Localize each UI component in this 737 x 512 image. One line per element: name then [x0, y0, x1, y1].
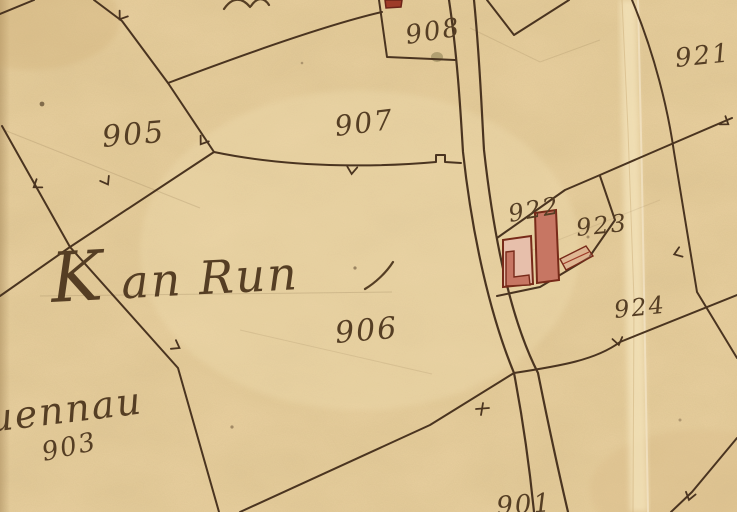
cadastral-map-scan: K an Runuennau 9059079089219229239249069…: [0, 0, 737, 512]
parcel-label-921: 921: [674, 38, 732, 74]
parcel-label-905: 905: [101, 115, 167, 155]
parcel-label-901: 901: [495, 488, 553, 512]
parcel-label-924: 924: [613, 291, 667, 324]
parcel-label-906: 906: [334, 311, 400, 351]
building-top-edge: [385, 0, 402, 8]
map-canvas: K an Runuennau 9059079089219229239249069…: [0, 0, 737, 512]
parcel-label-923: 923: [575, 209, 629, 242]
